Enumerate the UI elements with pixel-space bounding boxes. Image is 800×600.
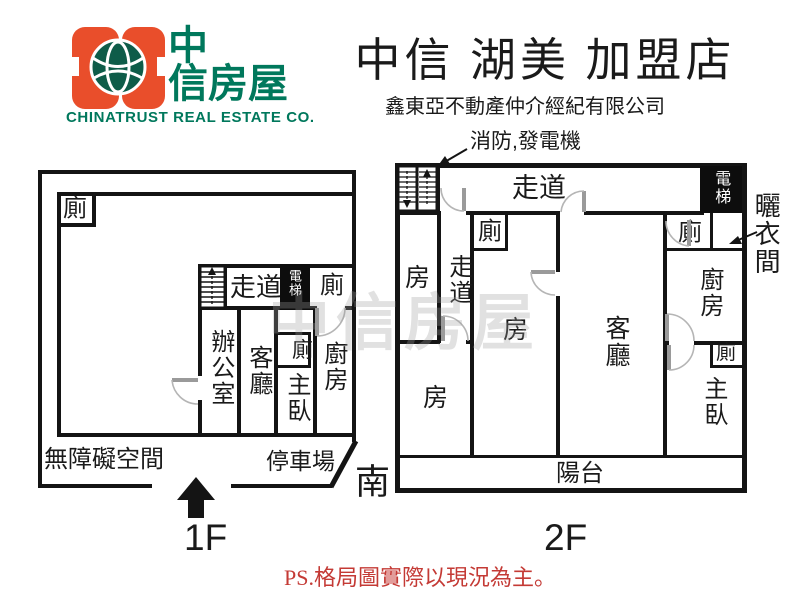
- floorplan-page: 中 信房屋 CHINATRUST REAL ESTATE CO. 中信 湖美 加…: [0, 0, 800, 600]
- door-arcs: [172, 188, 694, 404]
- laundry-arrow-icon: [729, 232, 757, 244]
- diagonal-wall-1f: [331, 441, 356, 487]
- entrance-arrow-icon: [177, 477, 215, 518]
- fire-generator-arrow-icon: [437, 149, 467, 167]
- stairs-2f-icon: [398, 166, 437, 211]
- stairs-1f-icon: [200, 266, 225, 308]
